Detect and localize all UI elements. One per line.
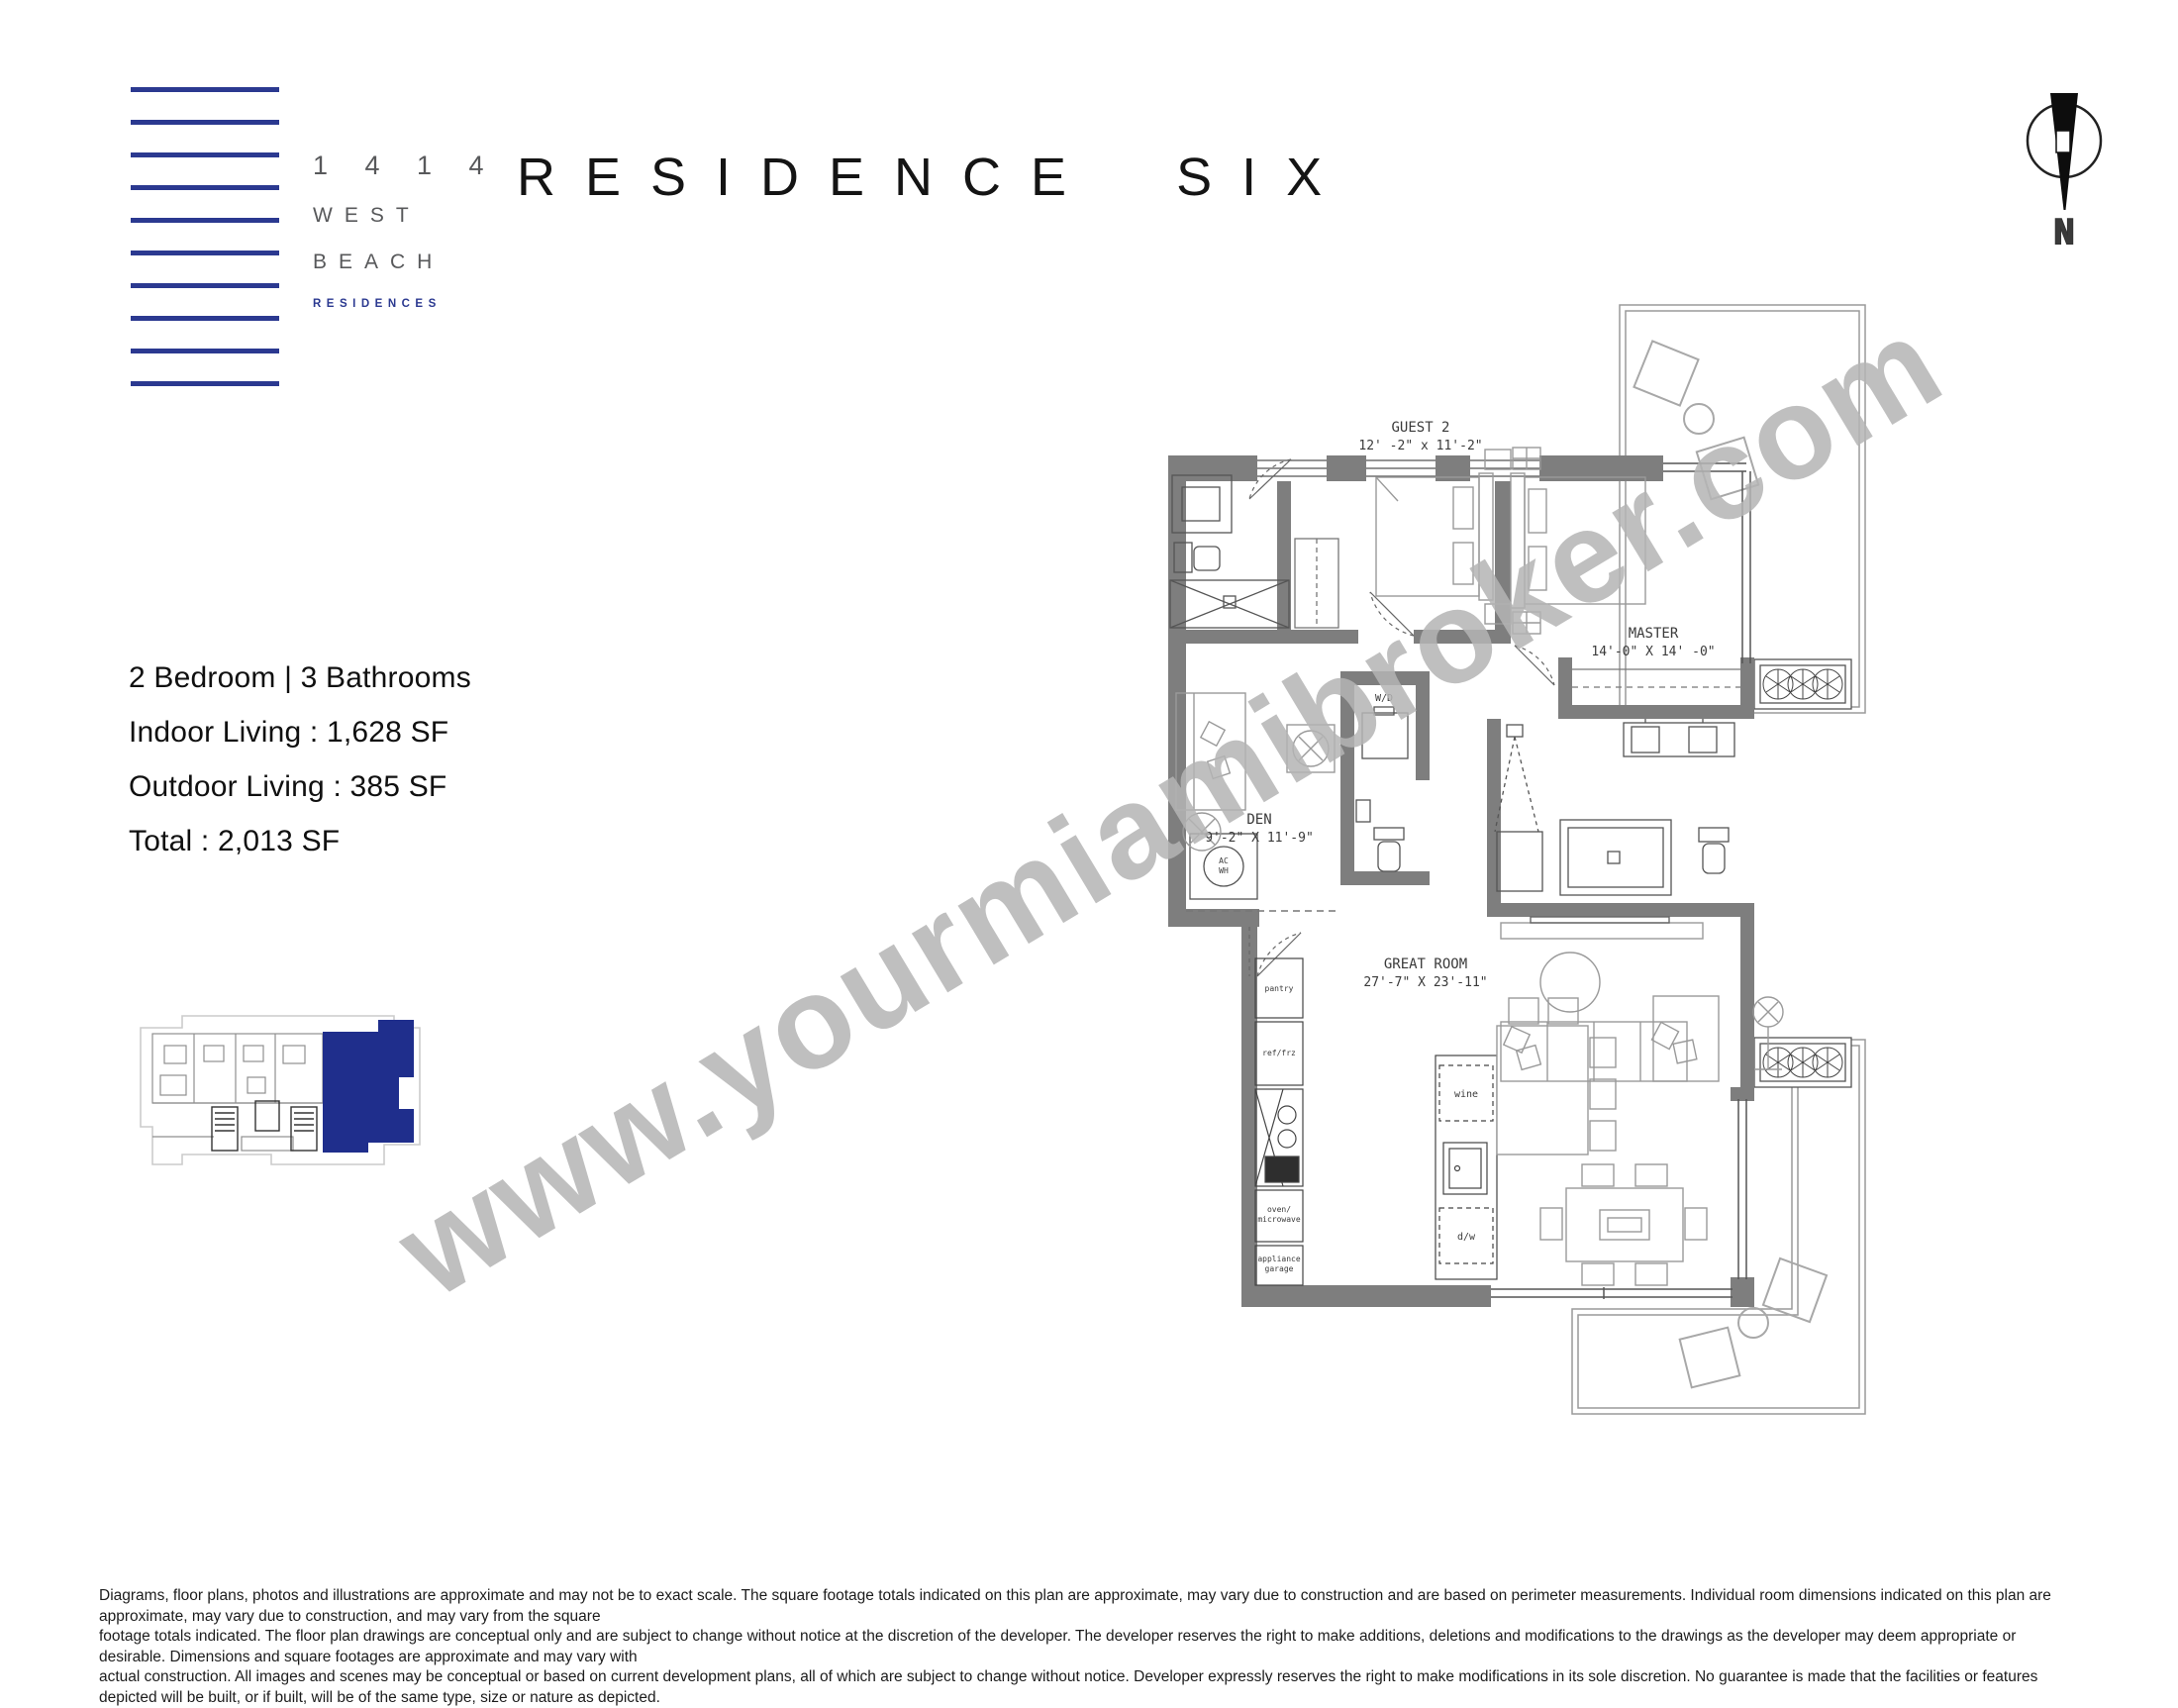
logo-text: 1 4 1 4 WEST BEACH RESIDENCES (313, 151, 499, 310)
label-pantry: pantry (1265, 984, 1294, 993)
disclaimer: Diagrams, floor plans, photos and illust… (99, 1586, 2079, 1708)
master-hall-doors (1515, 646, 1554, 685)
spec-config: 2 Bedroom | 3 Bathrooms (129, 661, 471, 695)
label-dw: d/w (1457, 1232, 1476, 1243)
disclaimer-line-1: Diagrams, floor plans, photos and illust… (99, 1586, 2079, 1627)
disclaimer-line-2: footage totals indicated. The floor plan… (99, 1627, 2079, 1667)
glass-walls (1491, 463, 1750, 1299)
dining-set (1540, 1164, 1707, 1285)
logo-west: WEST (313, 204, 499, 228)
specs-block: 2 Bedroom | 3 Bathrooms Indoor Living : … (129, 661, 471, 879)
label-wd: W/D (1375, 693, 1393, 704)
spec-indoor: Indoor Living : 1,628 SF (129, 716, 471, 750)
guest-door (1370, 592, 1414, 636)
powder-room (1356, 800, 1404, 871)
room-dims-great: 27'-7" X 23'-11" (1363, 975, 1487, 990)
room-label-den: DEN (1246, 812, 1271, 828)
guest-bath (1170, 475, 1289, 628)
label-wine: wine (1454, 1089, 1478, 1100)
label-wh: WH (1219, 866, 1229, 875)
label-app1: appliance (1257, 1255, 1301, 1263)
keyplan-highlight-notch (399, 1077, 414, 1109)
room-label-master: MASTER (1629, 626, 1679, 642)
page-title: RESIDENCE SIX (517, 147, 1351, 208)
spec-total: Total : 2,013 SF (129, 825, 471, 858)
room-dims-guest2: 12' -2" x 11'-2" (1358, 439, 1482, 453)
logo-residences: RESIDENCES (313, 298, 499, 310)
keyplan (125, 988, 434, 1184)
room-dims-den: 9'-2" X 11'-9" (1205, 831, 1314, 846)
master-closet (1572, 669, 1740, 687)
logo-beach: BEACH (313, 251, 499, 274)
label-app2: garage (1265, 1264, 1294, 1273)
room-label-guest2: GUEST 2 (1391, 420, 1449, 436)
laundry-closet (1362, 707, 1408, 758)
guest-closet (1295, 539, 1338, 628)
label-oven2: microwave (1257, 1215, 1301, 1224)
room-dims-master: 14'-0" X 14' -0" (1591, 645, 1715, 659)
north-label: N (2054, 213, 2074, 252)
north-arrow-icon: N (2008, 79, 2117, 252)
room-label-great: GREAT ROOM (1384, 956, 1467, 972)
den-furniture (1176, 693, 1340, 911)
disclaimer-line-3: actual construction. All images and scen… (99, 1667, 2079, 1708)
spec-outdoor: Outdoor Living : 385 SF (129, 770, 471, 804)
floorplan: GUEST 2 12' -2" x 11'-2" MASTER 14'-0" X… (1138, 277, 1901, 1436)
master-bath (1495, 719, 1734, 895)
keyplan-cores (212, 1101, 317, 1151)
planter-upper (1754, 659, 1851, 709)
label-ac: AC (1219, 856, 1229, 865)
logo-address: 1 4 1 4 (313, 151, 499, 181)
logo-lines-icon (131, 87, 279, 414)
label-oven1: oven/ (1267, 1205, 1291, 1214)
kitchen-cabinets (1255, 958, 1303, 1285)
flyer-page: { "logo": { "address": "1 4 1 4", "name1… (0, 0, 2178, 1683)
label-reffrz: ref/frz (1262, 1049, 1296, 1057)
